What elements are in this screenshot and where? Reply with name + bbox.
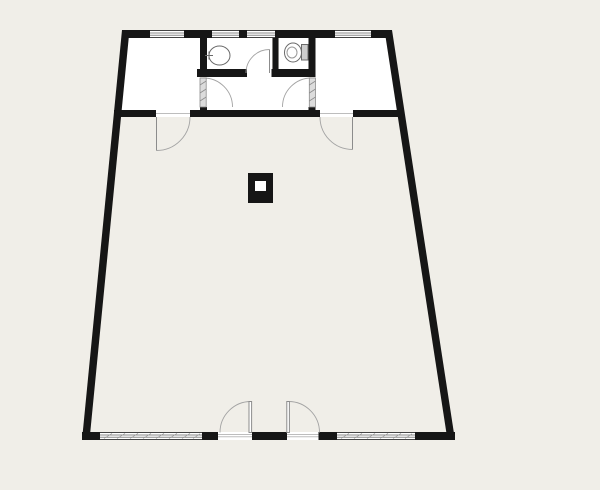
column bbox=[248, 173, 273, 203]
window-top-2 bbox=[212, 31, 239, 37]
opening-bathroom bbox=[247, 69, 272, 77]
door-strip-corridor-east bbox=[309, 78, 315, 107]
column-core bbox=[255, 181, 266, 191]
toilet-tank bbox=[302, 45, 309, 61]
wall-leftroom-divider bbox=[200, 38, 207, 70]
wall-leftroom-divider-stub bbox=[200, 107, 207, 111]
opening-entrance-right bbox=[287, 432, 319, 440]
door-strip-corridor-west bbox=[200, 78, 206, 107]
door-leaf-entrance-left bbox=[249, 402, 252, 433]
wall-wc-partition bbox=[273, 38, 279, 69]
door-leaf-entrance-right bbox=[287, 402, 290, 433]
room-corridor bbox=[207, 77, 309, 110]
wall-band-right bbox=[353, 110, 401, 117]
wall-bathroom-bottom-right bbox=[272, 69, 316, 77]
room-right bbox=[316, 38, 397, 110]
wall-band-left bbox=[114, 110, 156, 117]
window-top-1 bbox=[150, 31, 184, 37]
floor-plan-canvas bbox=[0, 0, 600, 490]
wall-rightroom-divider bbox=[309, 38, 316, 69]
wall-band-middle bbox=[190, 110, 320, 117]
window-top-4 bbox=[335, 31, 371, 37]
room-left bbox=[121, 38, 200, 110]
wall-rightroom-divider-stub bbox=[309, 107, 316, 111]
toilet-top-view-icon bbox=[285, 43, 309, 62]
wall-bathroom-bottom-left bbox=[197, 69, 247, 77]
opening-entrance-left bbox=[218, 432, 252, 440]
window-top-3 bbox=[247, 31, 275, 37]
